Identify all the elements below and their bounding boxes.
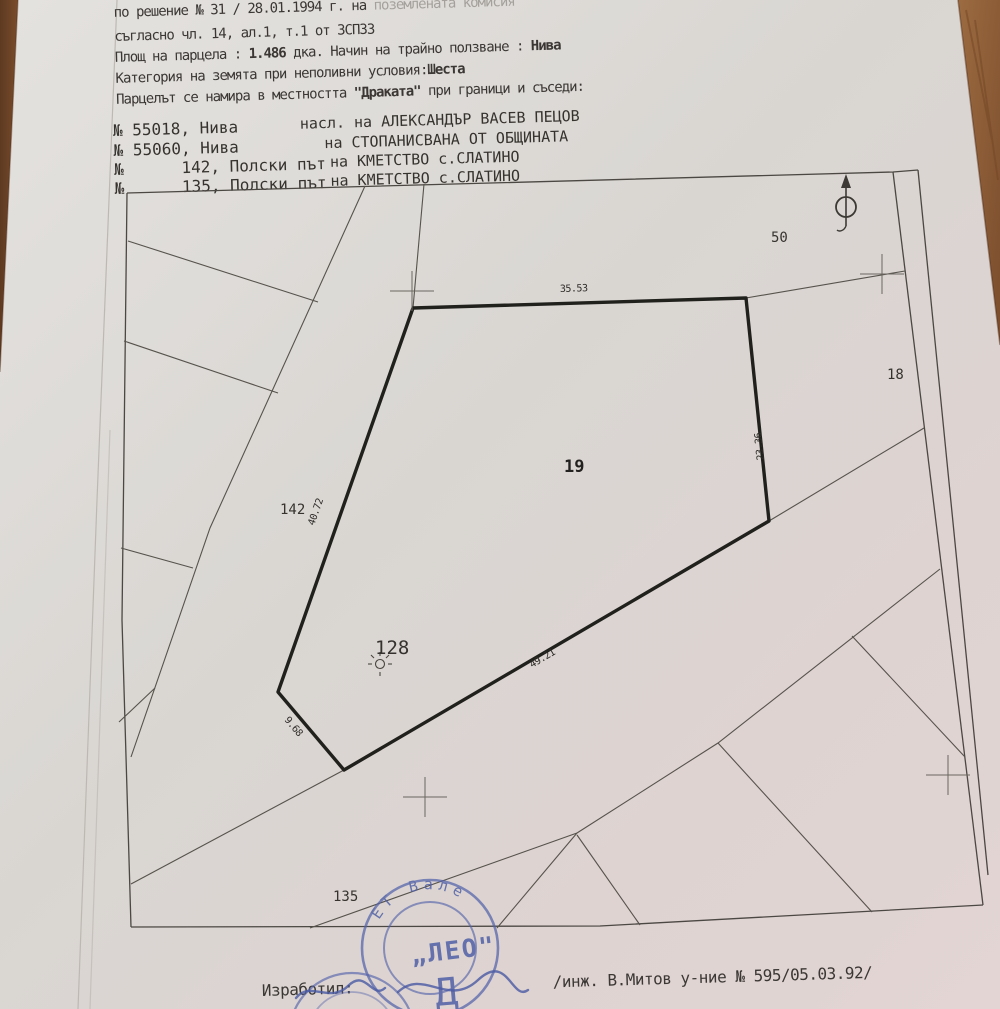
neighbor-list: № 55018, Нива насл. на АЛЕКСАНДЪР ВАСЕВ … [113,107,582,198]
neighbor-row-left: № 55018, Нива [113,117,239,139]
parcel-label-135: 135 [333,889,358,905]
parcel-label-19: 19 [564,457,584,477]
parcel-label-18: 18 [887,367,904,383]
dimension-top: 35.53 [560,283,588,295]
parcel-label-142: 142 [280,502,305,518]
author-label: Изработил: [262,978,354,1000]
scanned-cadastral-sketch: по решение № 31 / 28.01.1994 г. на позем… [0,0,1000,1009]
parcel-label-50: 50 [771,230,788,246]
parcel-label-128: 128 [375,637,409,659]
